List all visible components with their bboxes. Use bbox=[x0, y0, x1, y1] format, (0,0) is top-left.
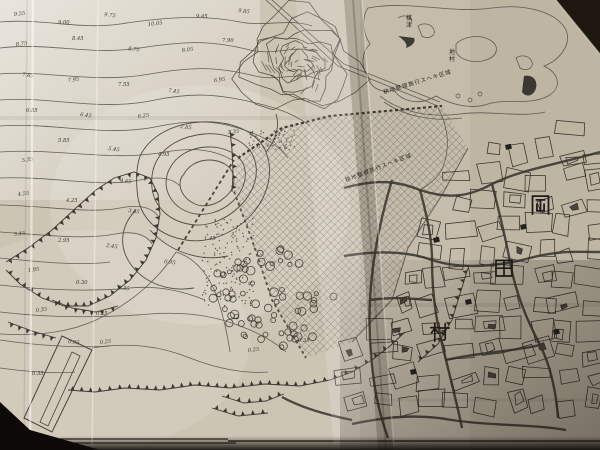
map-photograph: 9.559.009.7510.059.459.858.758.458.758.0… bbox=[0, 0, 600, 450]
svg-text:地村: 地村 bbox=[449, 48, 455, 63]
svg-text:9.45: 9.45 bbox=[196, 14, 208, 20]
svg-text:2.95: 2.95 bbox=[57, 238, 70, 244]
okada-village-map: 9.559.009.7510.059.459.858.758.458.758.0… bbox=[0, 0, 600, 450]
svg-text:0.25: 0.25 bbox=[96, 311, 108, 317]
svg-text:0.35: 0.35 bbox=[298, 338, 310, 344]
svg-text:9.00: 9.00 bbox=[58, 20, 70, 26]
svg-text:4.25: 4.25 bbox=[65, 198, 78, 204]
svg-text:4.95: 4.95 bbox=[157, 152, 170, 158]
svg-text:5.85: 5.85 bbox=[58, 138, 70, 144]
svg-text:8.45: 8.45 bbox=[72, 36, 84, 42]
svg-text:7.55: 7.55 bbox=[118, 82, 130, 88]
svg-text:1.45: 1.45 bbox=[204, 236, 216, 242]
svg-text:0.30: 0.30 bbox=[76, 280, 88, 286]
svg-text:0.35: 0.35 bbox=[32, 371, 44, 377]
svg-text:7.90: 7.90 bbox=[222, 38, 234, 44]
svg-text:楳津: 楳津 bbox=[406, 14, 412, 29]
